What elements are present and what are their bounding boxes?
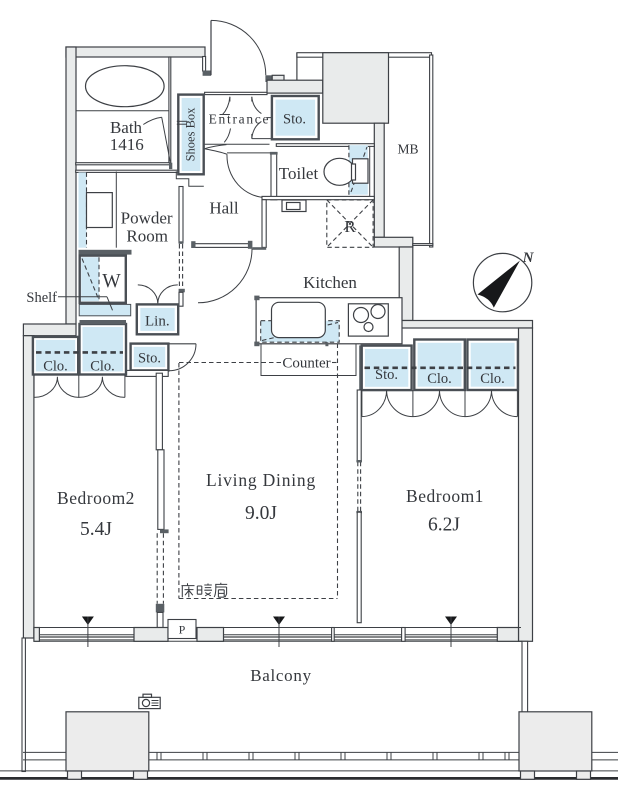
svg-text:Powder: Powder: [121, 209, 173, 228]
svg-text:9.0J: 9.0J: [245, 503, 277, 524]
svg-text:Shelf: Shelf: [26, 290, 57, 306]
svg-text:Bedroom1: Bedroom1: [406, 486, 484, 506]
svg-text:1416: 1416: [110, 135, 144, 154]
svg-text:Sto.: Sto.: [283, 112, 306, 128]
svg-text:P: P: [179, 623, 186, 637]
svg-text:Clo.: Clo.: [427, 371, 452, 387]
svg-text:Hall: Hall: [209, 199, 239, 218]
svg-text:N: N: [522, 250, 535, 266]
svg-text:Toilet: Toilet: [279, 164, 319, 183]
svg-text:Bedroom2: Bedroom2: [57, 488, 135, 508]
svg-text:Entrance: Entrance: [209, 112, 271, 127]
svg-text:Sto.: Sto.: [138, 351, 161, 367]
svg-text:Living Dining: Living Dining: [206, 470, 316, 490]
svg-text:6.2J: 6.2J: [428, 515, 460, 536]
svg-text:Counter: Counter: [282, 356, 330, 372]
svg-text:MB: MB: [397, 142, 418, 157]
svg-text:W: W: [102, 271, 121, 292]
svg-text:Kitchen: Kitchen: [303, 273, 357, 292]
svg-text:5.4J: 5.4J: [80, 519, 112, 540]
svg-text:Clo.: Clo.: [90, 359, 115, 375]
svg-text:Sto.: Sto.: [375, 367, 398, 383]
svg-text:Room: Room: [126, 227, 168, 246]
svg-text:Balcony: Balcony: [250, 666, 312, 685]
svg-text:Clo.: Clo.: [480, 371, 505, 387]
svg-text:Lin.: Lin.: [145, 314, 170, 330]
svg-text:Shoes Box: Shoes Box: [184, 107, 198, 162]
svg-text:R: R: [344, 217, 356, 236]
svg-text:Clo.: Clo.: [43, 359, 68, 375]
